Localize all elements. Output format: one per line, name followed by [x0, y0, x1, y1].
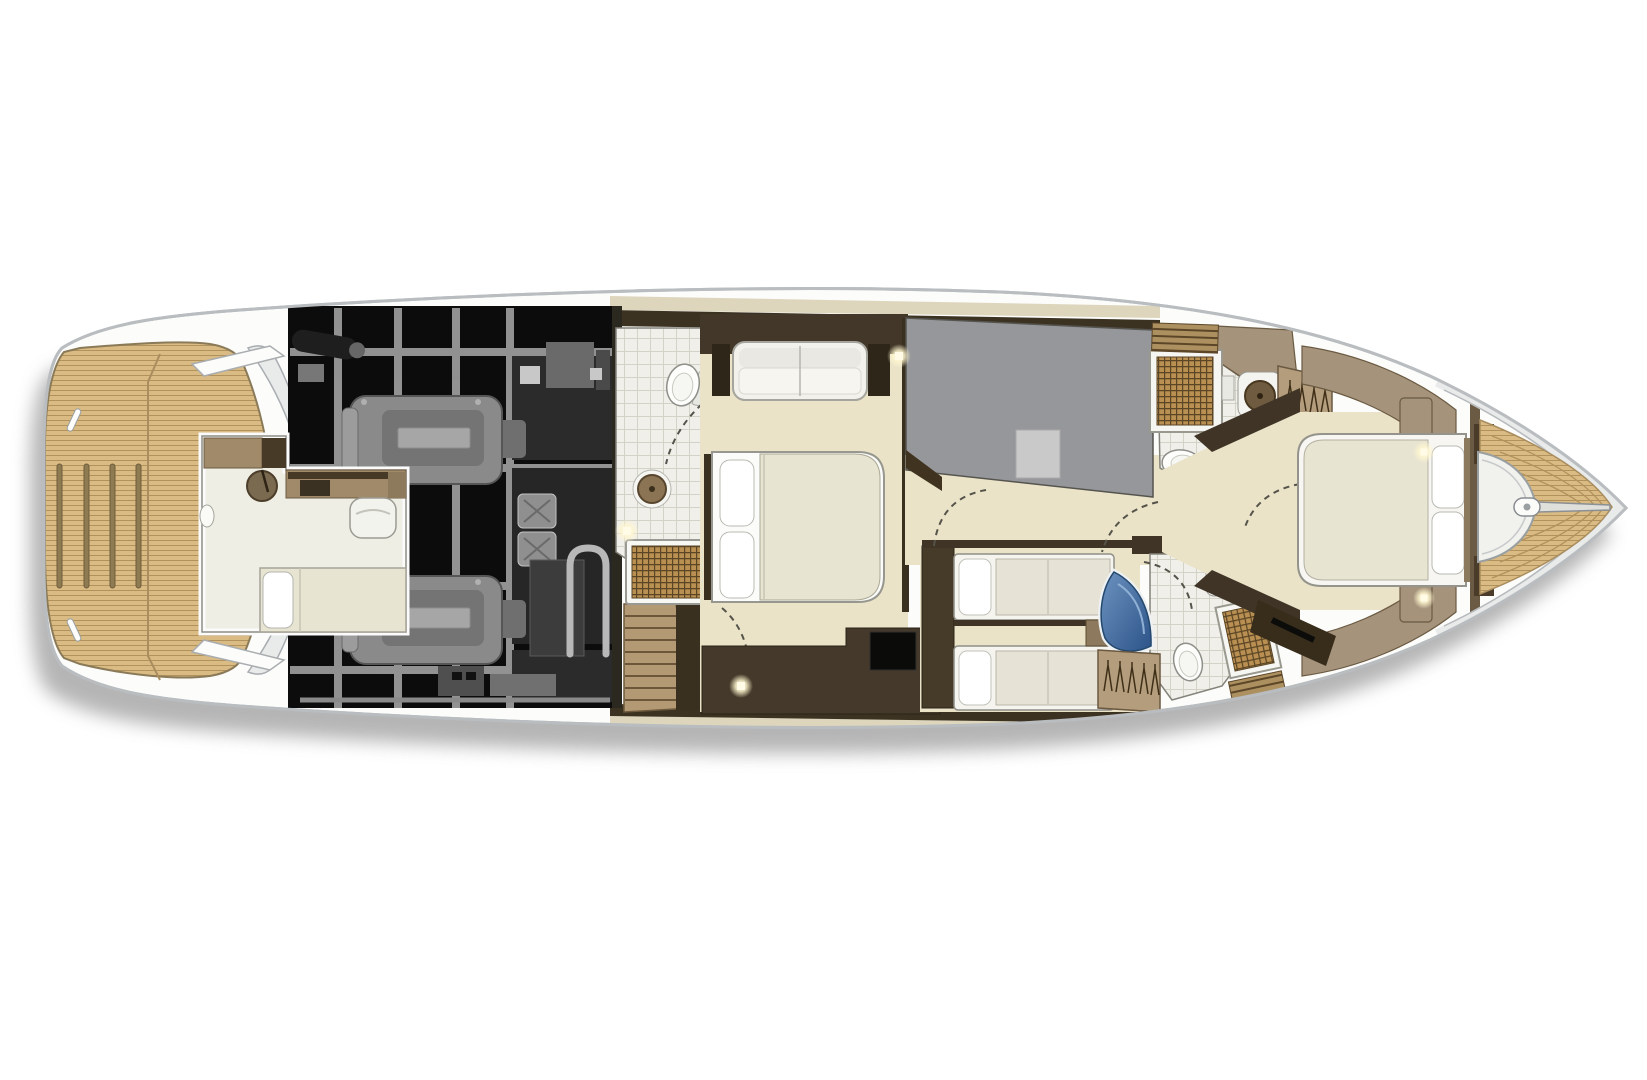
master-cabin	[700, 314, 940, 714]
crew-basin	[247, 471, 277, 501]
walk-in-wardrobe	[906, 318, 1153, 497]
twin-wardrobe	[922, 546, 954, 708]
headboard	[704, 454, 712, 600]
crew-pillow	[263, 572, 293, 628]
pillow	[720, 532, 754, 598]
shelf	[1222, 376, 1234, 400]
crew-cabinet	[204, 438, 262, 468]
twin-top-wall	[922, 540, 1134, 548]
twin-bed-lower	[954, 646, 1114, 710]
vip-bed	[1298, 434, 1472, 586]
windlass	[1514, 498, 1540, 516]
pillow	[959, 651, 991, 705]
duvet	[760, 454, 880, 600]
engine-label-plate	[398, 428, 470, 448]
pillow	[959, 559, 991, 615]
sofa	[712, 342, 890, 400]
crew-armchair	[350, 498, 396, 538]
hanging-locker-aft	[1098, 650, 1160, 712]
yacht-floor-plan	[0, 0, 1647, 1080]
tv-screen	[870, 632, 916, 670]
twin-bed-upper	[954, 554, 1114, 620]
pillow	[1432, 446, 1464, 508]
duvet	[1304, 440, 1428, 580]
pillow	[720, 460, 754, 526]
rug	[1016, 430, 1060, 478]
shower-grate	[632, 546, 702, 598]
companionway-stairs	[624, 598, 702, 712]
round-washbasin	[633, 470, 671, 508]
pillow	[1432, 512, 1464, 574]
shower	[1150, 350, 1222, 432]
master-bed	[704, 452, 884, 602]
slatted-locker	[1152, 323, 1219, 353]
screenshot-canvas	[0, 0, 1647, 1080]
shower-grate	[1157, 357, 1213, 425]
crew-seat-small	[200, 505, 214, 527]
